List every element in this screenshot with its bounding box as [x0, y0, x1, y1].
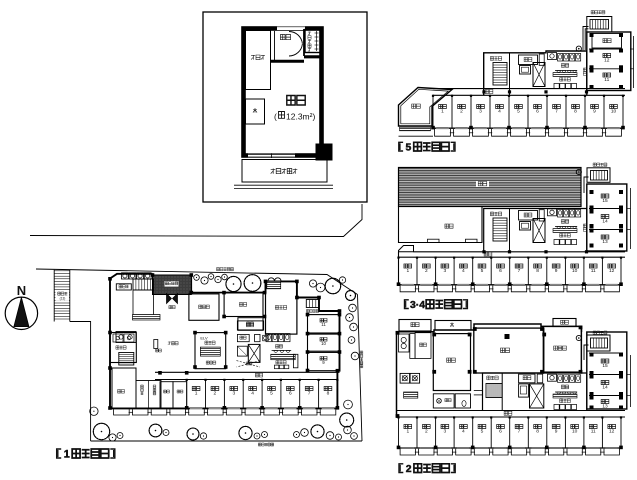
svg-text:1: 1	[406, 429, 409, 435]
svg-text:13: 13	[602, 404, 608, 410]
svg-text:10: 10	[611, 109, 617, 115]
svg-text:2: 2	[425, 429, 428, 435]
svg-text:14: 14	[602, 219, 608, 225]
svg-text:5: 5	[481, 429, 484, 435]
svg-text:2: 2	[214, 391, 217, 397]
svg-text:8: 8	[574, 109, 577, 115]
svg-text:6: 6	[499, 268, 502, 274]
svg-text:10: 10	[572, 268, 578, 274]
svg-text:4: 4	[498, 109, 501, 115]
svg-text:3: 3	[444, 429, 447, 435]
svg-text:9: 9	[555, 429, 558, 435]
svg-text:11: 11	[604, 77, 609, 83]
svg-text:7: 7	[308, 391, 311, 397]
svg-text:10: 10	[321, 341, 326, 346]
svg-text:5: 5	[481, 268, 484, 274]
svg-text:5: 5	[517, 109, 520, 115]
svg-text:ELV: ELV	[200, 336, 208, 341]
svg-text:4: 4	[462, 429, 465, 435]
svg-text:6: 6	[289, 391, 292, 397]
svg-text:11: 11	[591, 268, 596, 274]
svg-text:(: (	[274, 112, 277, 122]
svg-text:9: 9	[555, 268, 558, 274]
svg-text:13: 13	[602, 239, 608, 245]
svg-text:7: 7	[555, 109, 558, 115]
svg-text:2: 2	[425, 268, 428, 274]
svg-text:9: 9	[593, 109, 596, 115]
svg-text:11: 11	[321, 322, 326, 327]
svg-text:(13): (13)	[60, 297, 66, 301]
svg-text:15: 15	[602, 198, 608, 204]
svg-text:3: 3	[479, 109, 482, 115]
svg-text:11: 11	[591, 429, 596, 435]
svg-text:3: 3	[444, 268, 447, 274]
svg-text:1: 1	[195, 391, 198, 397]
svg-text:3·4: 3·4	[410, 300, 425, 311]
svg-text:1: 1	[441, 109, 444, 115]
svg-text:15: 15	[602, 363, 608, 369]
svg-text:12: 12	[604, 58, 610, 64]
svg-text:10: 10	[572, 429, 578, 435]
svg-text:5: 5	[406, 143, 412, 154]
svg-text:2: 2	[406, 464, 412, 475]
svg-text:8: 8	[536, 429, 539, 435]
svg-text:4: 4	[462, 268, 465, 274]
svg-text:4: 4	[251, 391, 254, 397]
svg-text:1: 1	[406, 268, 409, 274]
svg-text:6: 6	[536, 109, 539, 115]
svg-text:1: 1	[64, 449, 70, 461]
svg-text:6: 6	[499, 429, 502, 435]
svg-text:12.3m²): 12.3m²)	[286, 112, 315, 122]
svg-text:14: 14	[602, 385, 608, 391]
svg-text:3: 3	[232, 391, 235, 397]
svg-text:N: N	[17, 283, 26, 298]
svg-text:12: 12	[609, 429, 615, 435]
svg-text:2: 2	[460, 109, 463, 115]
svg-text:7: 7	[518, 429, 521, 435]
svg-text:7: 7	[518, 268, 521, 274]
svg-text:12: 12	[609, 268, 615, 274]
svg-text:8: 8	[536, 268, 539, 274]
svg-text:5: 5	[270, 391, 273, 397]
svg-text:8: 8	[327, 391, 330, 397]
